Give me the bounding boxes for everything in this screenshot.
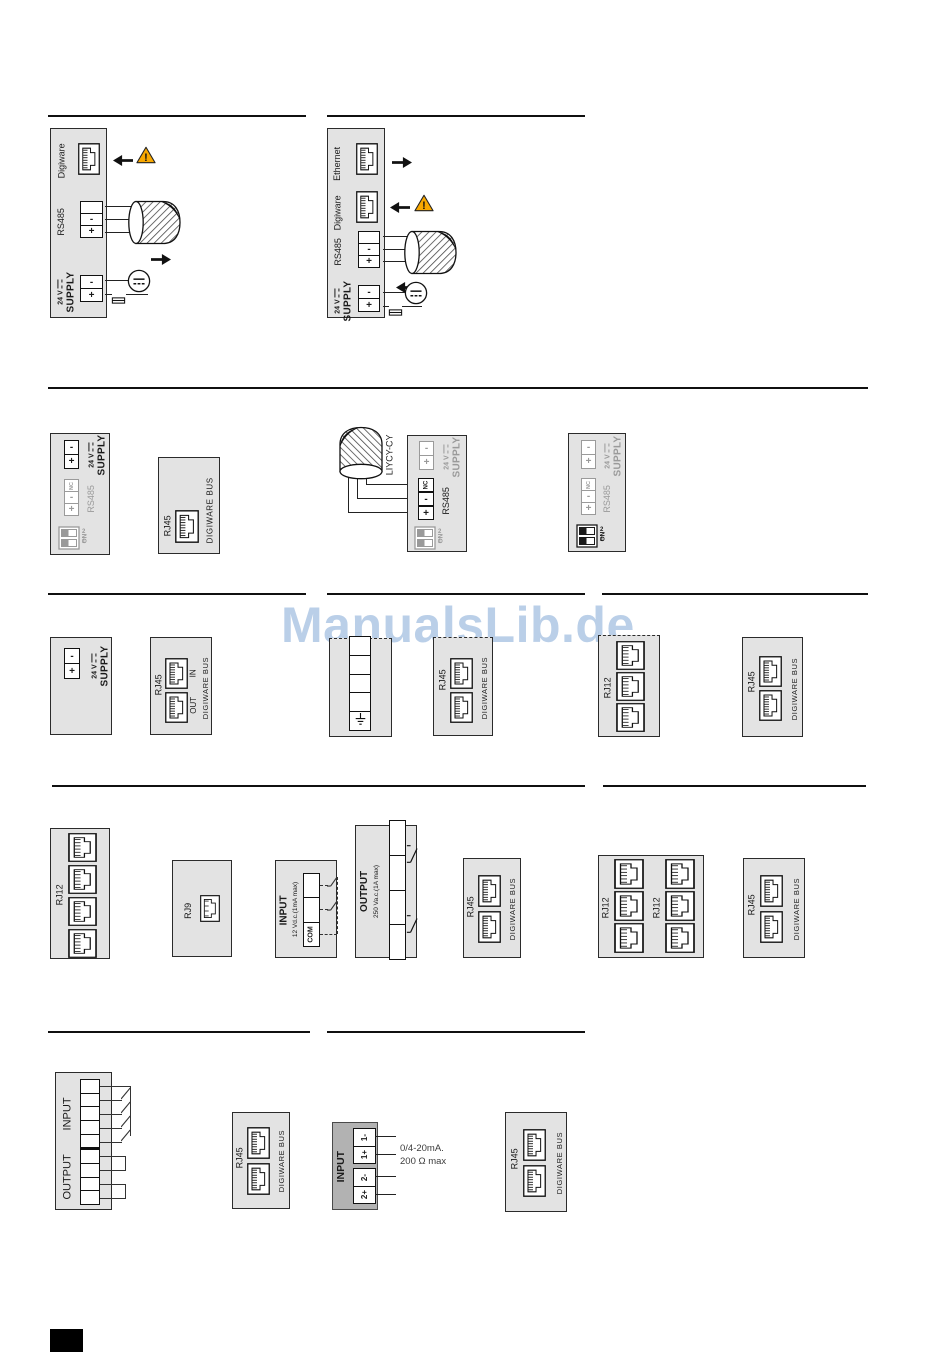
terminal-cell (390, 891, 405, 926)
shielded-cable-icon (338, 424, 383, 480)
terminal-cell (81, 1121, 99, 1135)
analog-terminal: 2- (354, 1169, 375, 1187)
rj12-jack-icon (616, 703, 645, 732)
io-terminal-panel: INPUT OUTPUT (55, 1072, 112, 1210)
svg-text:!: ! (144, 152, 148, 164)
divider (327, 1031, 585, 1033)
digiware-bus-label: DIGIWARE BUS (200, 648, 212, 728)
output-rating-label: 250 Va.c.(1A max) (372, 846, 381, 938)
rj12-label: RJ12 (651, 886, 663, 930)
rj12-label: RJ12 (600, 886, 612, 930)
wire (100, 1156, 126, 1157)
rs485-plus-terminal: + (581, 502, 596, 515)
terminal-cell (81, 1191, 99, 1204)
wire (375, 1176, 396, 1177)
rj45-label: RJ45 (235, 1137, 246, 1179)
rj12-panel: RJ12 (598, 635, 660, 737)
divider (48, 593, 306, 595)
ethernet-port-label: Ethernet (330, 141, 346, 187)
ground-terminal-panel (329, 638, 392, 737)
rj45-jack-icon (247, 1127, 270, 1159)
wire (100, 1100, 122, 1101)
rj12-jack-icon (68, 929, 97, 958)
digiware-bus-panel: RJ45 DIGIWARE BUS (743, 858, 805, 958)
output-label: OUTPUT (359, 856, 373, 926)
terminal-cell (81, 1135, 99, 1149)
digiware-bus-panel: RJ45 DIGIWARE BUS (742, 637, 803, 737)
com-terminal: COM (304, 923, 319, 946)
dip-switch-icon: 21 ON (58, 526, 100, 550)
wire (100, 1142, 122, 1143)
gateway-terminal-panel: Ethernet Digiware RS485 - + 24 VSUPPLY -… (327, 128, 385, 318)
output-label: OUTPUT (60, 1147, 77, 1207)
rs485-label: RS485 (54, 201, 70, 243)
dc-symbol (90, 653, 98, 662)
wire (126, 294, 148, 295)
module-panel-rs485: - + 24 VSUPPLY NC - + RS485 21 ON (407, 435, 467, 552)
out-label: OUT (189, 692, 199, 718)
switch-contact-icon (405, 842, 418, 871)
terminal-cell (81, 1164, 99, 1178)
rj45-jack-icon (356, 191, 378, 223)
input-label: INPUT (60, 1087, 77, 1141)
digiware-bus-label: DIGIWARE BUS (276, 1119, 288, 1203)
digiware-bus-label: DIGIWARE BUS (789, 648, 801, 730)
rs485-plus-terminal: + (64, 503, 79, 516)
shielded-cable-icon (403, 229, 459, 281)
rj45-label: RJ45 (747, 883, 758, 927)
shielded-cable-icon (127, 199, 183, 251)
terminal-cell (350, 693, 370, 712)
cable-type-label: LIYCY-CY (384, 426, 397, 484)
terminal-cell (390, 856, 405, 891)
terminal-strip (349, 636, 371, 731)
rj12-label: RJ12 (602, 668, 614, 708)
supply-label: 24 VSUPPLY (436, 436, 462, 478)
rj45-jack-icon (759, 656, 782, 687)
rj45-jack-icon (523, 1129, 546, 1161)
digiware-bus-label: DIGIWARE BUS (204, 474, 218, 546)
wire (375, 1136, 396, 1137)
input-label: INPUT (278, 881, 292, 939)
divider (603, 785, 866, 787)
terminal-cell (81, 1107, 99, 1121)
wire (125, 1184, 126, 1198)
rj12-jack-icon (616, 641, 645, 670)
divider (48, 115, 306, 117)
rs485-label: RS485 (81, 479, 103, 519)
rs485-label: RS485 (598, 478, 618, 520)
warning-icon: ! (136, 146, 156, 169)
supply-label: 24 VSUPPLY (51, 269, 75, 315)
digiware-port-label: Digiware (330, 189, 346, 237)
dip-switch-icon: 21 ON (576, 524, 618, 550)
rj12-jack-icon (614, 923, 644, 953)
wire (383, 292, 405, 293)
analog-terminal: 2+ (354, 1187, 375, 1204)
dual-rj12-panel: RJ12 RJ12 (598, 855, 704, 958)
digiware-bus-label: DIGIWARE BUS (554, 1121, 566, 1205)
terminal-cell (350, 675, 370, 694)
rj12-jack-icon (665, 891, 695, 921)
wire (100, 1198, 126, 1199)
rj45-label: RJ45 (154, 664, 165, 706)
digital-input-panel: INPUT 12 Vd.c.(1mA max) COM (275, 860, 337, 958)
supply-panel: - + 24 VSUPPLY (50, 637, 112, 735)
rj45-label: RJ45 (466, 885, 477, 929)
rj12-label: RJ12 (54, 873, 66, 917)
supply-label: 24 VSUPPLY (81, 434, 107, 476)
display-terminal-panel: Digiware RS485 - + 24 VSUPPLY - + (50, 128, 107, 318)
wire (100, 1170, 126, 1171)
analog-terminal: 1+ (354, 1147, 375, 1164)
digiware-port-label: Digiware (53, 139, 71, 183)
supply-label: 24 VSUPPLY (598, 434, 622, 478)
supply-label: 24 VSUPPLY (83, 642, 111, 690)
wire (337, 877, 338, 934)
wire (105, 280, 129, 281)
arrow-left-icon (390, 200, 410, 218)
terminal-strip (80, 1079, 100, 1205)
terminal-cell (81, 1080, 99, 1094)
supply-minus-terminal: - (419, 441, 434, 456)
rj12-jack-icon (68, 865, 97, 894)
dc-symbol (56, 279, 64, 288)
rj45-jack-icon (478, 911, 501, 943)
arrow-left-icon (113, 153, 133, 164)
rj45-jack-icon (523, 1165, 546, 1197)
dc-symbol (603, 443, 611, 452)
terminal-strip: 2- 2+ (353, 1168, 376, 1204)
rs485-plus-terminal: + (358, 255, 380, 268)
page-number-box (50, 1329, 83, 1352)
rj12-jack-icon (665, 859, 695, 889)
terminal-cell (81, 1148, 99, 1164)
digiware-bus-panel: RJ45 DIGIWARE BUS (463, 858, 521, 958)
wire (375, 1154, 396, 1155)
relay-output-panel: OUTPUT 250 Va.c.(1A max) (355, 825, 417, 958)
rj12-jack-icon (614, 891, 644, 921)
wire (320, 934, 337, 935)
rj45-label: RJ45 (510, 1137, 521, 1181)
supply-minus-terminal: - (358, 285, 380, 299)
terminal-cell (304, 898, 319, 922)
rj12-jack-icon (665, 923, 695, 953)
ground-icon (354, 712, 367, 730)
supply-label: 24 VSUPPLY (328, 279, 352, 323)
divider (52, 785, 585, 787)
rj45-label: RJ45 (438, 660, 449, 700)
rj45-label: RJ45 (162, 508, 174, 544)
divider (602, 593, 868, 595)
rj12-jack-icon (616, 672, 645, 701)
rj9-panel: RJ9 (172, 860, 232, 957)
rj45-jack-icon (247, 1163, 270, 1195)
divider (48, 1031, 310, 1033)
rj45-label: RJ45 (747, 662, 758, 702)
rj45-jack-icon (760, 875, 783, 907)
supply-plus-terminal: + (64, 663, 80, 679)
digiware-bus-label: DIGIWARE BUS (507, 867, 519, 951)
dc-symbol (442, 444, 450, 453)
rs485-minus-terminal: - (418, 492, 434, 506)
rs485-nc-terminal: NC (418, 478, 434, 492)
wire (100, 1114, 122, 1115)
rj45-jack-icon (165, 658, 188, 689)
terminal-cell (350, 656, 370, 675)
rs485-plus-terminal: + (418, 506, 434, 520)
in-label: IN (189, 662, 199, 684)
supply-plus-terminal: + (581, 454, 596, 469)
wire (125, 1156, 126, 1170)
analog-range-note: 0/4-20mA. 200 Ω max (400, 1142, 446, 1168)
rj12-panel: RJ12 (50, 828, 110, 959)
rj45-jack-icon (165, 692, 188, 723)
analog-input-panel: INPUT 1- 1+ 2- 2+ (332, 1122, 378, 1210)
rj9-jack-icon (200, 895, 220, 922)
rj45-jack-icon (356, 143, 378, 175)
digiware-bus-panel: RJ45 DIGIWARE BUS (232, 1112, 290, 1209)
wire (375, 1194, 396, 1195)
digiware-bus-label: DIGIWARE BUS (479, 648, 491, 728)
module-panel-supply: - + 24 VSUPPLY NC - + RS485 21 ON (50, 433, 110, 555)
dc-symbol (87, 442, 95, 451)
rs485-label: RS485 (332, 231, 346, 273)
dc-symbol (333, 288, 341, 297)
supply-plus-terminal: + (64, 454, 79, 469)
terminal-strip (389, 820, 406, 960)
rj45-jack-icon (759, 690, 782, 721)
rj45-jack-icon (78, 143, 100, 175)
supply-minus-terminal: - (64, 648, 80, 664)
rj45-jack-icon (478, 875, 501, 907)
rs485-label: RS485 (437, 480, 457, 522)
terminal-cell (81, 1178, 99, 1192)
switch-contact-icon (405, 912, 418, 941)
fuse-icon (388, 303, 403, 321)
rj45-jack-icon (450, 692, 473, 723)
wire (130, 1086, 131, 1136)
dip-switch-icon: 21 ON (414, 526, 456, 550)
divider (48, 387, 868, 389)
terminal-cell (390, 821, 405, 856)
manual-page: ManualsLib.de Digiware RS485 - + 24 VSUP… (0, 0, 950, 1360)
input-label: INPUT (334, 1139, 349, 1195)
supply-plus-terminal: + (358, 298, 380, 312)
module-panel-dip: - + 24 VSUPPLY NC - + RS485 21 ON (568, 433, 626, 552)
terminal-strip: COM (303, 873, 320, 947)
rj9-label: RJ9 (183, 897, 195, 925)
wire (348, 476, 349, 512)
digiware-bus-in-out-panel: RJ45 IN OUT DIGIWARE BUS (150, 637, 212, 735)
wire (100, 1184, 126, 1185)
digiware-bus-panel: RJ45 DIGIWARE BUS (433, 637, 493, 736)
arrow-right-icon (151, 252, 171, 270)
rj12-jack-icon (68, 897, 97, 926)
wire (100, 1128, 122, 1129)
rs485-plus-terminal: + (80, 225, 103, 238)
rj45-jack-icon (450, 658, 473, 689)
supply-plus-terminal: + (80, 288, 103, 302)
rj12-jack-icon (68, 833, 97, 862)
supply-plus-terminal: + (419, 455, 434, 470)
digiware-bus-panel: RJ45 DIGIWARE BUS (158, 457, 220, 554)
arrow-right-icon (392, 155, 412, 173)
terminal-cell (81, 1094, 99, 1108)
warning-icon: ! (414, 194, 434, 217)
supply-minus-terminal: - (80, 275, 103, 289)
rj45-jack-icon (760, 911, 783, 943)
terminal-strip: 1- 1+ (353, 1128, 376, 1164)
supply-minus-terminal: - (581, 440, 596, 455)
digiware-bus-label: DIGIWARE BUS (791, 867, 803, 951)
svg-text:!: ! (422, 200, 426, 212)
input-rating-label: 12 Vd.c.(1mA max) (291, 871, 300, 949)
fuse-icon (111, 291, 126, 309)
wire (402, 306, 422, 307)
divider (327, 593, 585, 595)
supply-minus-terminal: - (64, 440, 79, 455)
terminal-cell (350, 637, 370, 656)
terminal-cell (304, 874, 319, 898)
digiware-bus-panel: RJ45 DIGIWARE BUS (505, 1112, 567, 1212)
rj12-jack-icon (614, 859, 644, 889)
divider (327, 115, 585, 117)
terminal-cell (350, 712, 370, 730)
analog-terminal: 1- (354, 1129, 375, 1147)
terminal-cell (390, 925, 405, 959)
rj45-jack-icon (175, 510, 199, 543)
